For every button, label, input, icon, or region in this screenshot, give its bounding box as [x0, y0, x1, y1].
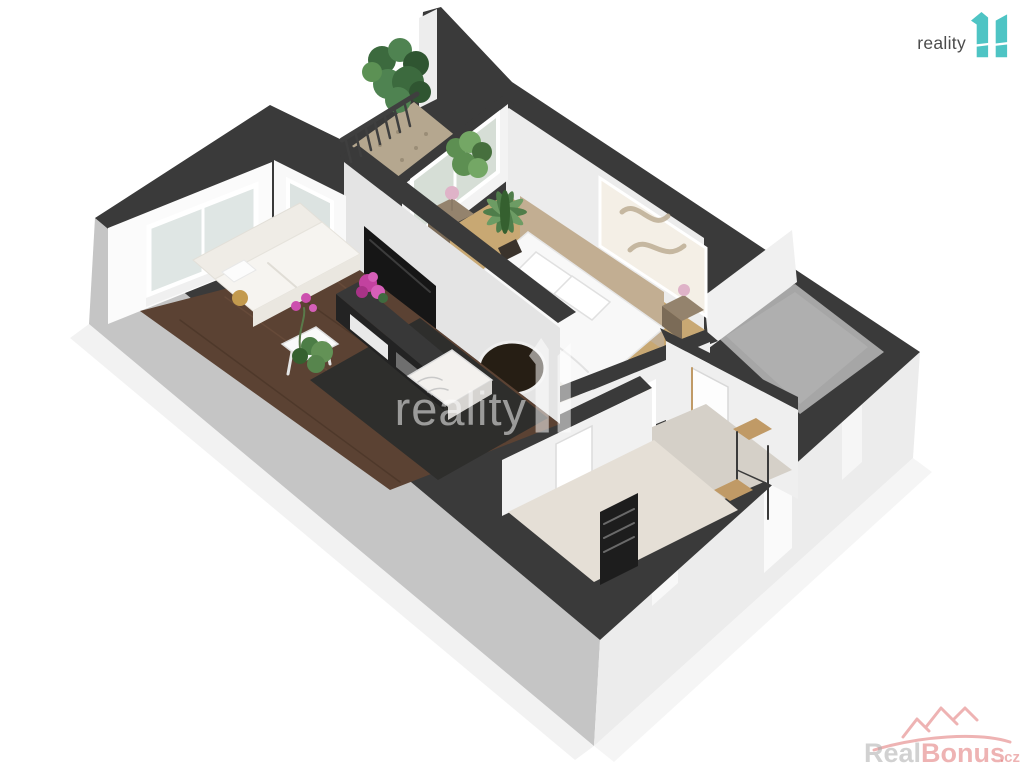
reality11-logo-icon: [971, 12, 1008, 57]
pebble-3: [414, 146, 418, 150]
sofa-pillow-mustard: [232, 290, 248, 306]
palm-blade-6: [500, 190, 510, 234]
sideboard-flower-3: [356, 286, 368, 298]
center-watermark-text: reality: [395, 382, 527, 435]
table-lamp-1: [445, 186, 459, 200]
orchid-blossom-1: [291, 301, 301, 311]
floorplan-scene: reality reality Real Bonus .cz: [0, 0, 1024, 768]
monstera-leaf-6: [362, 62, 382, 82]
orchid-blossom-3: [309, 304, 317, 312]
fern-leaf-5: [468, 158, 488, 178]
corner-watermark-text-accent: Bonus: [921, 738, 1005, 768]
sideboard-flower-leaf: [378, 293, 388, 303]
corner-watermark-text-primary: Real: [864, 738, 921, 768]
sideboard-flower-4: [368, 272, 378, 282]
house-roofs-icon: [903, 708, 977, 737]
green-plant-4: [307, 355, 325, 373]
corner-watermark-suffix: .cz: [1000, 749, 1020, 766]
header-logo-text: reality: [917, 33, 966, 53]
pebble-4: [400, 158, 404, 162]
table-lamp-2: [678, 284, 690, 296]
orchid-blossom-2: [301, 293, 311, 303]
header-logo: reality: [917, 12, 1008, 57]
corner-watermark: Real Bonus .cz: [864, 708, 1020, 768]
floorplan-render: reality reality Real Bonus .cz: [0, 0, 1024, 768]
pebble-5: [424, 132, 428, 136]
green-plant-3: [292, 348, 308, 364]
